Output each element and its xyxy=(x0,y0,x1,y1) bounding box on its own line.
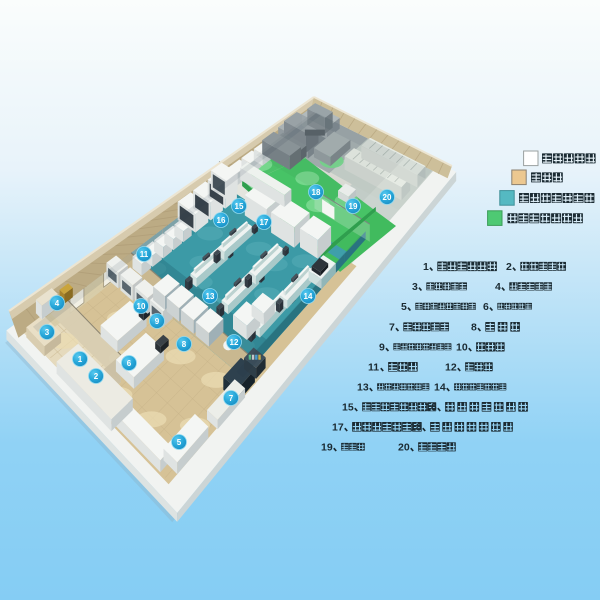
svg-text:16: 16 xyxy=(217,216,226,225)
svg-text:11: 11 xyxy=(140,250,149,259)
svg-text:18: 18 xyxy=(410,422,422,434)
svg-text:1: 1 xyxy=(78,355,83,364)
svg-text:14: 14 xyxy=(304,292,313,301)
svg-text:15: 15 xyxy=(235,202,244,211)
svg-text:16: 16 xyxy=(425,402,437,414)
svg-text:13: 13 xyxy=(357,382,369,394)
svg-text:10: 10 xyxy=(137,302,146,311)
svg-text:9: 9 xyxy=(379,342,385,354)
svg-text:7: 7 xyxy=(389,322,395,334)
svg-text:15: 15 xyxy=(342,402,354,414)
svg-text:8: 8 xyxy=(471,322,477,334)
svg-text:2: 2 xyxy=(94,372,99,381)
svg-text:3: 3 xyxy=(412,281,418,293)
svg-text:12: 12 xyxy=(230,338,239,347)
svg-text:14: 14 xyxy=(434,382,446,394)
svg-text:17: 17 xyxy=(332,422,344,434)
svg-text:10: 10 xyxy=(456,342,468,354)
svg-text:6: 6 xyxy=(483,301,489,313)
svg-text:5: 5 xyxy=(401,301,407,313)
svg-text:8: 8 xyxy=(182,340,187,349)
svg-text:19: 19 xyxy=(321,442,333,454)
svg-text:3: 3 xyxy=(45,328,50,337)
svg-text:1: 1 xyxy=(423,261,429,273)
svg-text:9: 9 xyxy=(155,317,160,326)
svg-text:11: 11 xyxy=(368,362,379,374)
svg-text:17: 17 xyxy=(260,218,269,227)
svg-text:2: 2 xyxy=(506,261,512,273)
svg-text:13: 13 xyxy=(206,292,215,301)
svg-text:5: 5 xyxy=(177,438,182,447)
svg-text:4: 4 xyxy=(495,281,501,293)
svg-text:4: 4 xyxy=(55,299,60,308)
svg-text:7: 7 xyxy=(229,394,234,403)
svg-text:18: 18 xyxy=(312,188,321,197)
svg-text:20: 20 xyxy=(383,193,392,202)
svg-text:6: 6 xyxy=(127,359,132,368)
svg-text:12: 12 xyxy=(445,362,457,374)
svg-text:20: 20 xyxy=(398,442,410,454)
svg-text:19: 19 xyxy=(349,202,358,211)
